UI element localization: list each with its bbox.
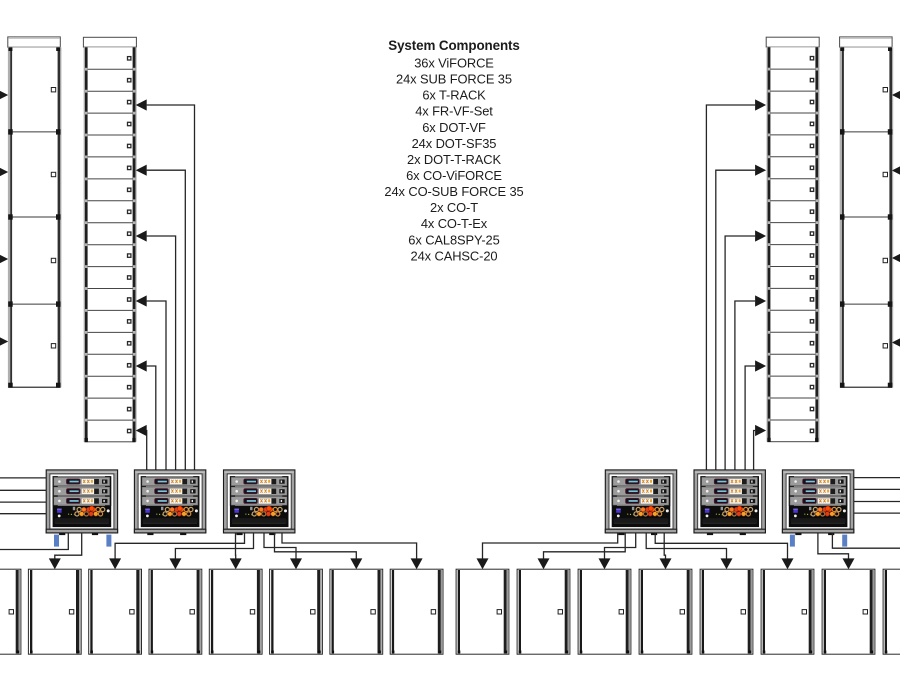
svg-text:24x DOT-SF35: 24x DOT-SF35 (412, 136, 497, 151)
svg-text:2x DOT-T-RACK: 2x DOT-T-RACK (407, 152, 501, 167)
svg-text:36x ViFORCE: 36x ViFORCE (414, 56, 494, 71)
svg-text:6x DOT-VF: 6x DOT-VF (422, 120, 486, 135)
svg-text:24x CAHSC-20: 24x CAHSC-20 (411, 248, 498, 263)
svg-text:6x CO-ViFORCE: 6x CO-ViFORCE (406, 168, 502, 183)
svg-text:4x CO-T-Ex: 4x CO-T-Ex (421, 216, 488, 231)
svg-text:24x SUB FORCE 35: 24x SUB FORCE 35 (396, 72, 512, 87)
svg-text:24x CO-SUB FORCE 35: 24x CO-SUB FORCE 35 (384, 184, 523, 199)
svg-text:4x FR-VF-Set: 4x FR-VF-Set (415, 104, 493, 119)
svg-text:2x CO-T: 2x CO-T (430, 200, 478, 215)
svg-text:System Components: System Components (388, 38, 520, 53)
svg-text:6x T-RACK: 6x T-RACK (422, 88, 486, 103)
svg-text:6x CAL8SPY-25: 6x CAL8SPY-25 (408, 232, 499, 247)
